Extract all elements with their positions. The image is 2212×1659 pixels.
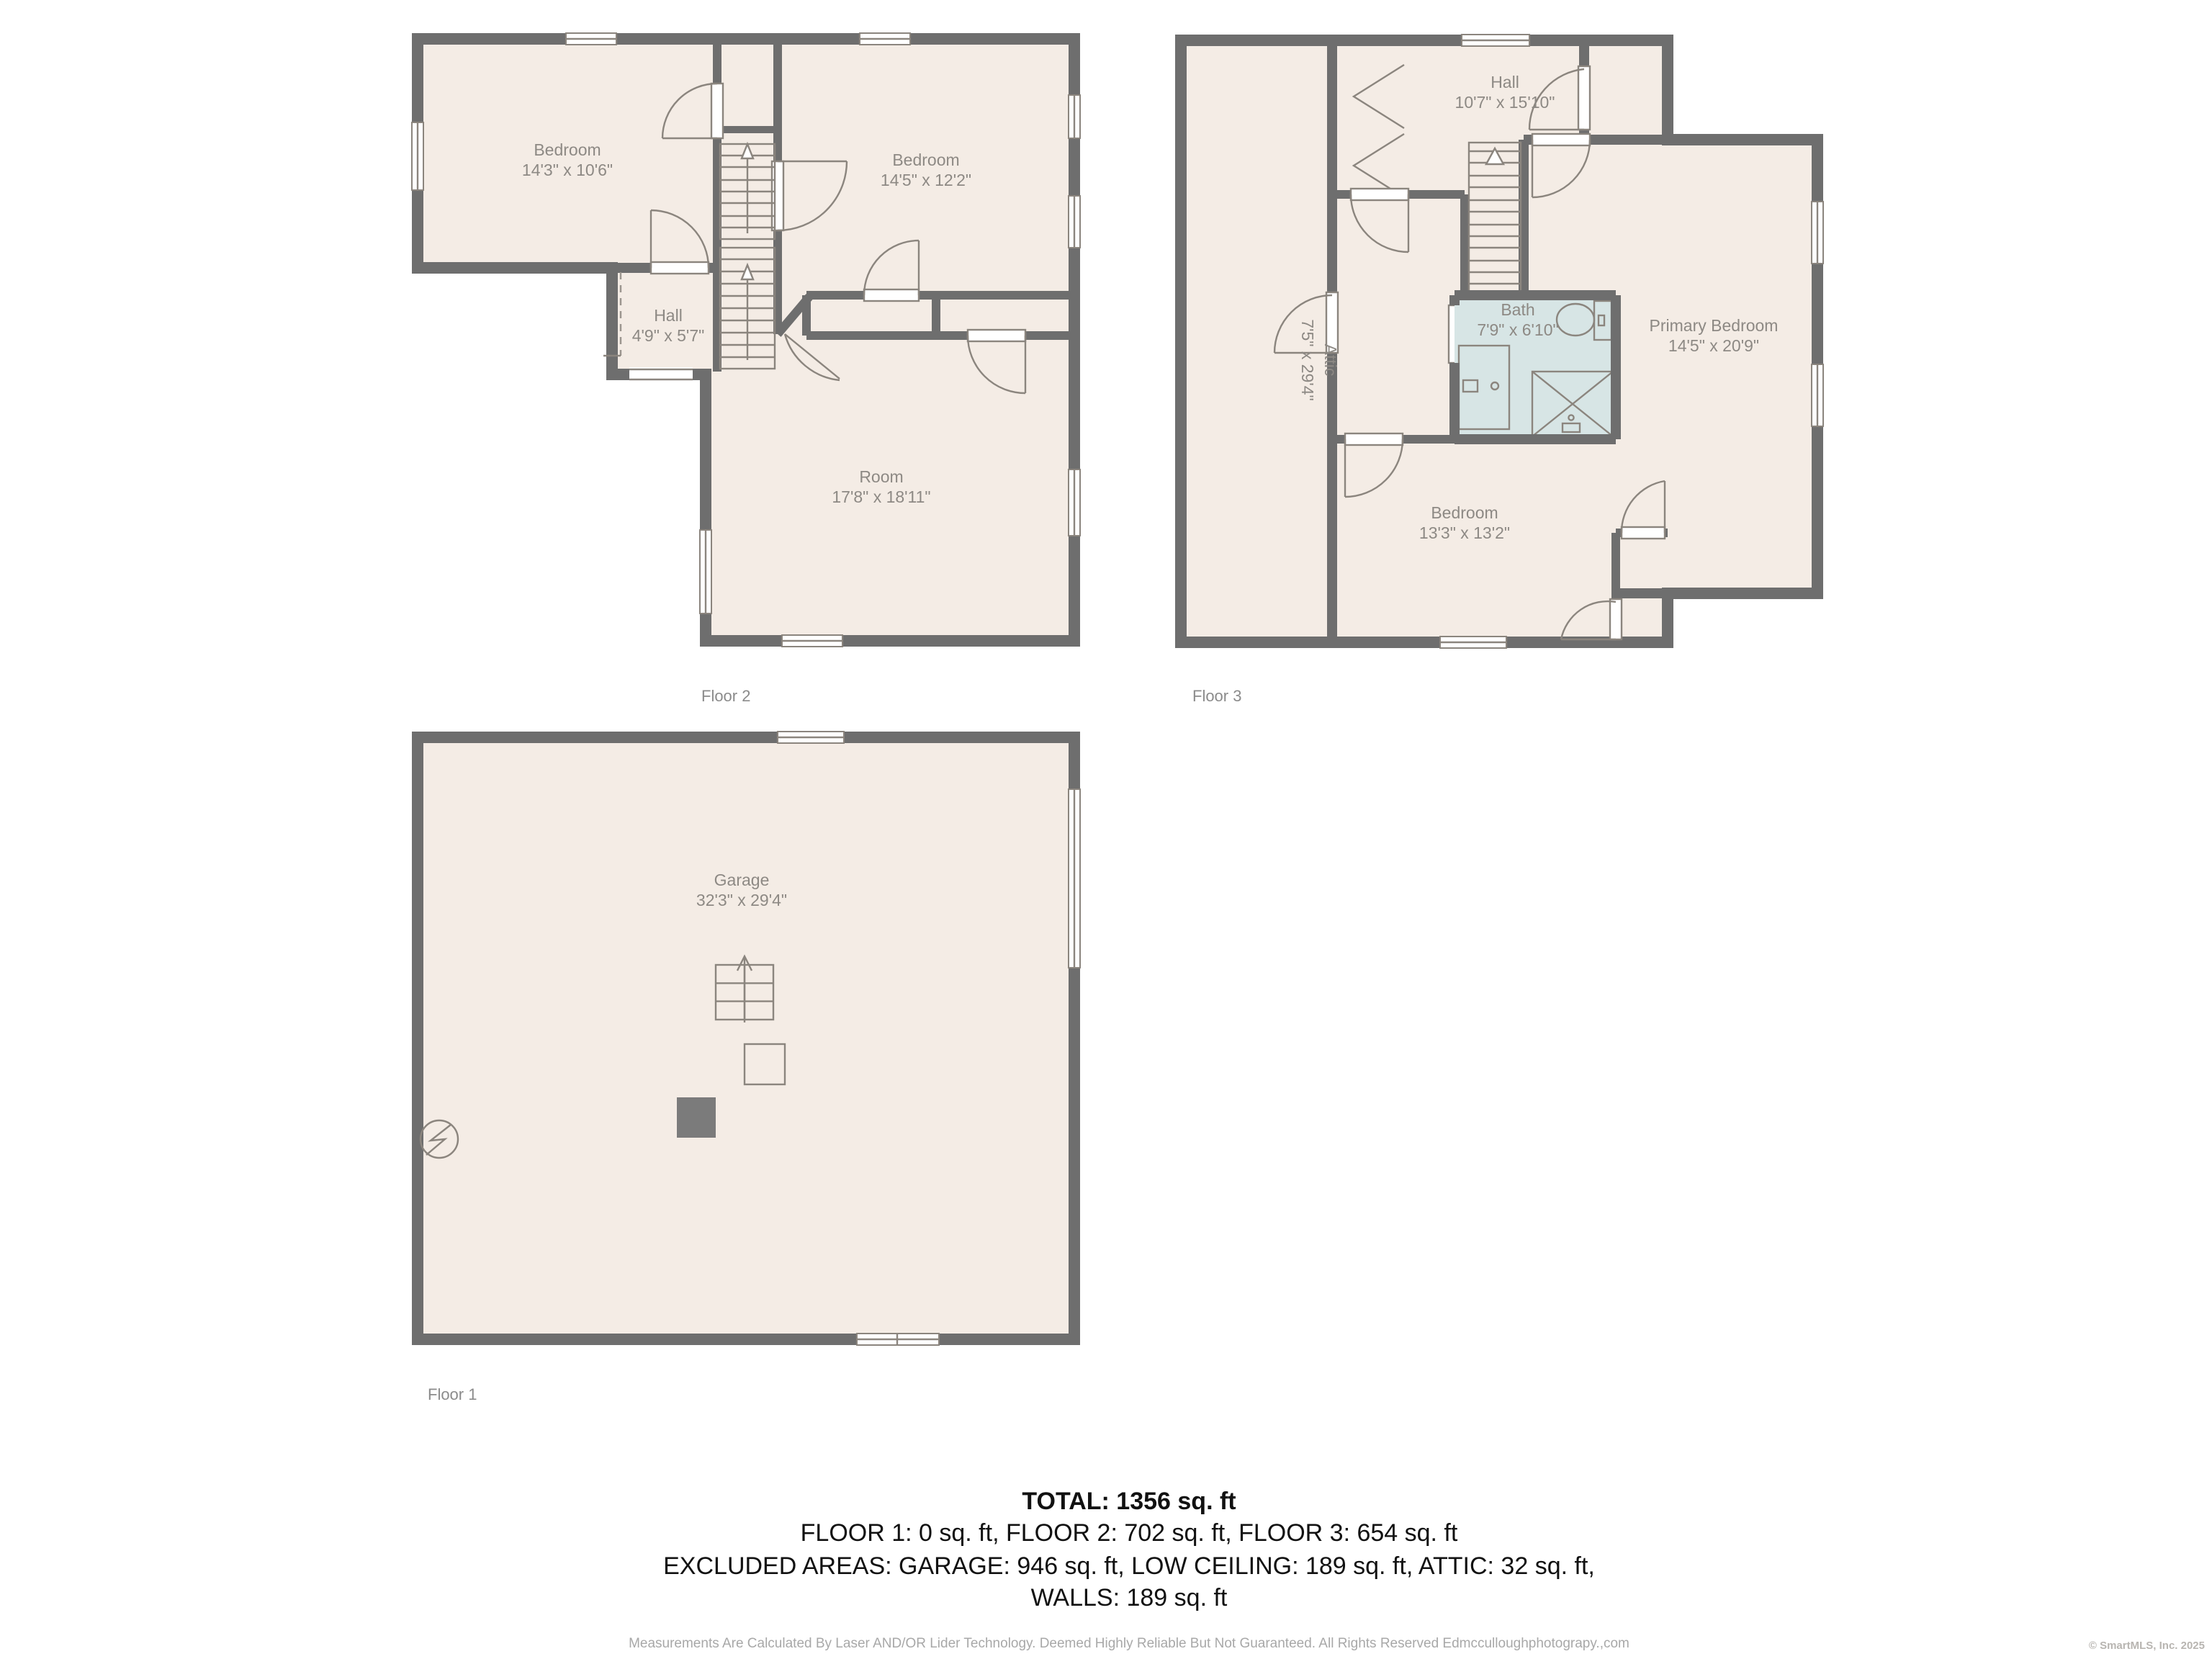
room-label-name: Bedroom [534,140,601,159]
window [778,732,844,743]
room-label-dims: 4'9" x 5'7" [632,326,705,345]
bathroom [1455,295,1616,439]
floor-areas-text: FLOOR 1: 0 sq. ft, FLOOR 2: 702 sq. ft, … [46,1518,2212,1550]
floor-plan-page: Bedroom 14'3" x 10'6" Bedroom 14'5" x 12… [0,0,2212,1659]
floor3-plan: Hall 10'7" x 15'10" Attic 7'5" x 29'4" B… [1159,26,1836,660]
room-label-name: Bedroom [892,150,959,169]
floor1-caption: Floor 1 [428,1387,477,1404]
room-label-name: Garage [714,871,770,889]
window [1069,196,1080,248]
room-label-name: Hall [654,306,683,325]
window [860,33,910,45]
total-area-text: TOTAL: 1356 sq. ft [46,1485,2212,1518]
window [1462,35,1529,46]
window [782,635,842,647]
room-label-dims: 14'5" x 12'2" [881,171,971,189]
wall-opening [629,367,693,382]
room-label-dims: 7'5" x 29'4" [1298,319,1317,400]
window [700,530,711,613]
room-label-dims: 13'3" x 13'2" [1419,523,1510,542]
floor1-footprint [418,737,1074,1339]
room-label-name: Attic [1321,344,1340,377]
room-label-dims: 14'3" x 10'6" [522,161,613,179]
smartmls-copyright: © SmartMLS, Inc. 2025 [2089,1639,2205,1652]
room-label-name: Primary Bedroom [1650,316,1779,335]
window [1440,637,1506,648]
excluded-areas-text: EXCLUDED AREAS: GARAGE: 946 sq. ft, LOW … [46,1550,2212,1583]
room-label-name: Hall [1491,73,1519,91]
window [1069,789,1080,968]
window [412,122,423,190]
room-label-name: Room [859,467,903,486]
window [566,33,616,45]
floor2-caption: Floor 2 [701,688,751,706]
room-label-dims: 17'8" x 18'11" [832,487,930,506]
window [1812,202,1823,264]
floor1-plan: Garage 32'3" x 29'4" [403,720,1089,1354]
room-label-dims: 10'7" x 15'10" [1455,93,1555,112]
area-summary: TOTAL: 1356 sq. ft FLOOR 1: 0 sq. ft, FL… [0,1485,2212,1615]
room-label-dims: 32'3" x 29'4" [696,891,787,909]
measurement-disclaimer: Measurements Are Calculated By Laser AND… [0,1636,2212,1652]
window [1069,469,1080,536]
window [1069,95,1080,138]
room-label-name: Bedroom [1431,503,1498,522]
floor3-caption: Floor 3 [1192,688,1242,706]
floor2-plan: Bedroom 14'3" x 10'6" Bedroom 14'5" x 12… [403,26,1089,651]
room-label-dims: 14'5" x 20'9" [1668,336,1759,355]
room-label-name: Bath [1501,300,1534,319]
walls-area-text: WALLS: 189 sq. ft [46,1583,2212,1615]
window [1812,364,1823,426]
window [857,1334,939,1345]
filled-box-icon [677,1097,716,1138]
room-label-dims: 7'9" x 6'10" [1477,320,1558,339]
